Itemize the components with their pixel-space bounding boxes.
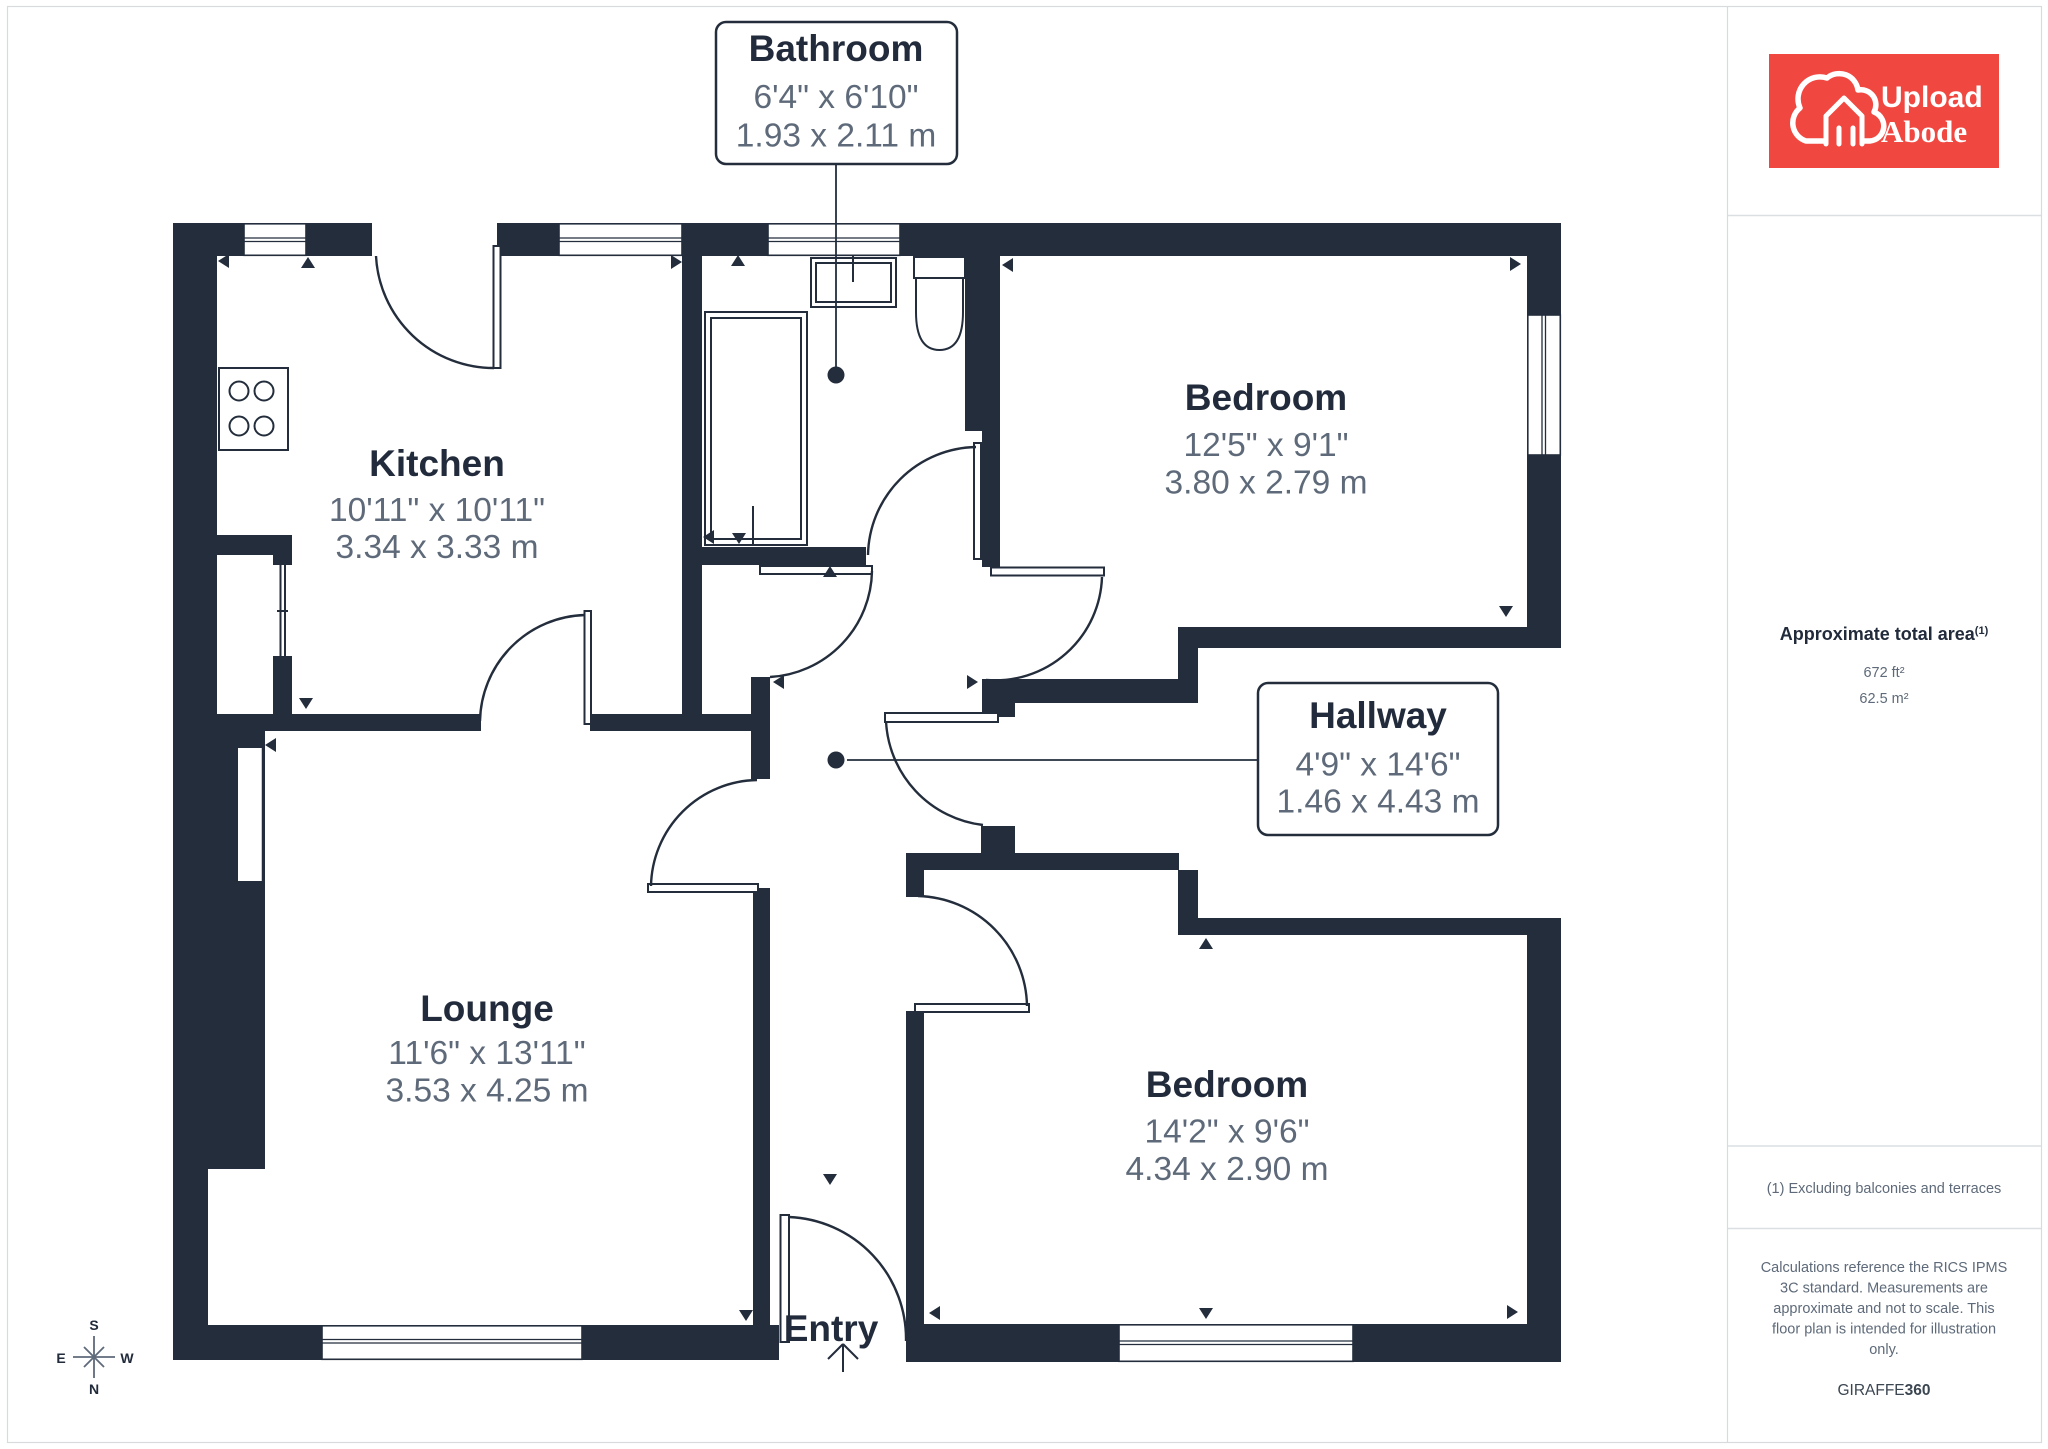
svg-text:W: W — [120, 1350, 134, 1366]
svg-text:3C standard. Measurements are: 3C standard. Measurements are — [1780, 1281, 1988, 1297]
svg-text:3.80 x 2.79 m: 3.80 x 2.79 m — [1165, 465, 1368, 502]
svg-text:14'2" x 9'6": 14'2" x 9'6" — [1144, 1114, 1309, 1151]
svg-text:S: S — [89, 1317, 98, 1333]
svg-text:12'5" x 9'1": 12'5" x 9'1" — [1183, 427, 1348, 464]
svg-text:4'9" x 14'6": 4'9" x 14'6" — [1295, 747, 1460, 784]
svg-text:11'6" x 13'11": 11'6" x 13'11" — [388, 1035, 585, 1072]
svg-text:10'11" x 10'11": 10'11" x 10'11" — [329, 492, 545, 529]
svg-text:only.: only. — [1869, 1342, 1899, 1358]
svg-text:N: N — [89, 1381, 99, 1397]
svg-text:Approximate total area(1): Approximate total area(1) — [1780, 624, 1989, 644]
svg-text:672 ft²: 672 ft² — [1863, 665, 1904, 681]
svg-text:approximate and not to scale.: approximate and not to scale. This — [1773, 1301, 1994, 1317]
svg-text:4.34 x 2.90 m: 4.34 x 2.90 m — [1126, 1151, 1329, 1188]
svg-text:Entry: Entry — [784, 1308, 879, 1349]
svg-text:Abode: Abode — [1881, 114, 1967, 149]
svg-text:Kitchen: Kitchen — [369, 443, 505, 484]
svg-text:Bedroom: Bedroom — [1185, 377, 1347, 418]
svg-text:Bedroom: Bedroom — [1146, 1064, 1308, 1105]
svg-text:3.53 x 4.25 m: 3.53 x 4.25 m — [386, 1073, 589, 1110]
svg-text:Upload: Upload — [1881, 81, 1983, 114]
svg-text:GIRAFFE360: GIRAFFE360 — [1837, 1382, 1930, 1399]
svg-text:floor plan is intended for ill: floor plan is intended for illustration — [1772, 1322, 1996, 1338]
svg-text:3.34 x 3.33 m: 3.34 x 3.33 m — [336, 529, 539, 566]
svg-text:1.46 x 4.43 m: 1.46 x 4.43 m — [1277, 784, 1480, 821]
svg-text:Lounge: Lounge — [420, 988, 554, 1029]
svg-text:62.5 m²: 62.5 m² — [1859, 691, 1908, 707]
svg-text:E: E — [56, 1350, 65, 1366]
svg-text:Bathroom: Bathroom — [749, 28, 924, 69]
svg-text:(1) Excluding balconies and te: (1) Excluding balconies and terraces — [1767, 1181, 2002, 1197]
svg-text:Hallway: Hallway — [1309, 695, 1447, 736]
svg-text:1.93 x 2.11 m: 1.93 x 2.11 m — [736, 118, 937, 155]
svg-text:6'4" x 6'10": 6'4" x 6'10" — [753, 79, 918, 116]
svg-text:Calculations reference the RIC: Calculations reference the RICS IPMS — [1761, 1260, 2008, 1276]
